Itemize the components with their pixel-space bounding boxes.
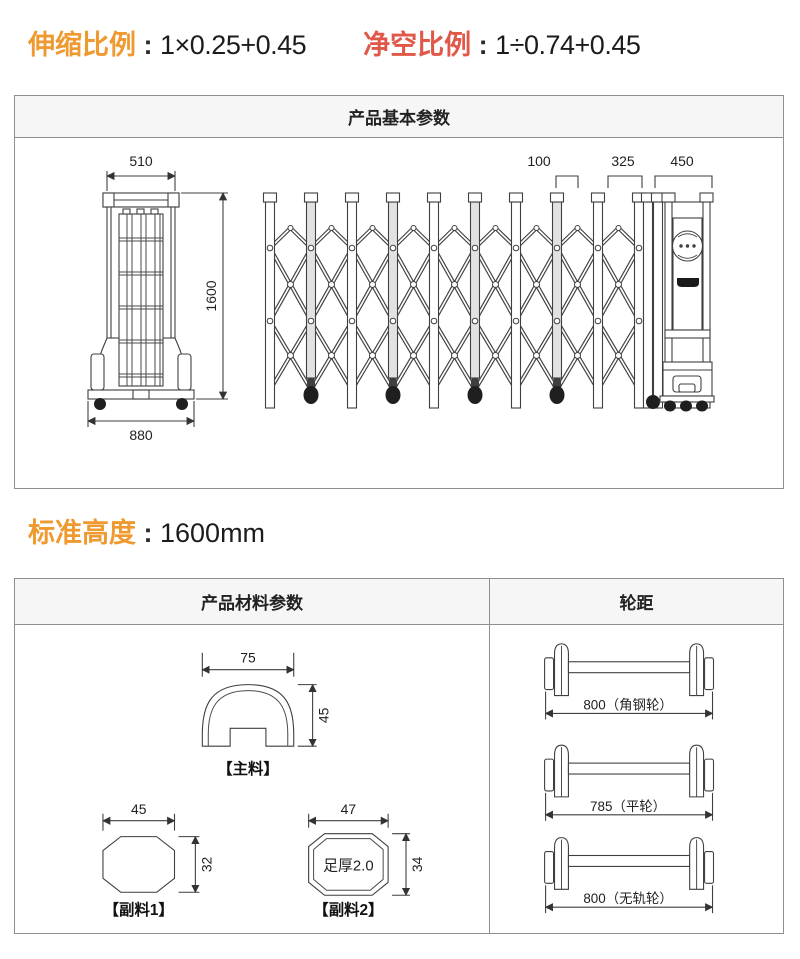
handle-slot [677, 278, 699, 287]
wheel-track-drawing: 800（角钢轮） 785（平轮） 800（无轨轮） [490, 625, 783, 933]
wheel-track-title: 轮距 [490, 579, 783, 625]
main-profile-caption: 【主料】 [217, 759, 279, 778]
sub-profile-1: 45 32 【副料1】 [103, 801, 214, 919]
folded-gate-view: 510 [88, 153, 228, 443]
sub-profile-2-width: 47 [341, 801, 357, 817]
basic-parameters-panel: 产品基本参数 [14, 95, 784, 489]
standard-height-label: 标准高度 [28, 511, 136, 550]
sub-profile-2-caption: 【副料2】 [313, 900, 383, 919]
main-profile-height: 45 [316, 707, 332, 723]
ratio-separator: : [471, 29, 495, 61]
sub-profile-1-height: 32 [198, 856, 214, 872]
sub-profile-2-wall-note: 足厚2.0 [323, 857, 373, 874]
dim-510-label: 510 [129, 153, 153, 169]
extension-ratio: 伸缩比例 : 1×0.25+0.45 [28, 29, 306, 61]
dim-510-lines [107, 171, 175, 191]
basic-parameters-title: 产品基本参数 [15, 96, 783, 138]
standard-height-value: 1600mm [160, 518, 265, 549]
main-profile-width: 75 [240, 650, 256, 666]
wheel-track-column: 轮距 [490, 579, 783, 933]
material-column: 产品材料参数 75 45 【主料】 [15, 579, 490, 933]
standard-height-row: 标准高度 : 1600mm [28, 511, 265, 550]
clearance-ratio-label: 净空比例 [363, 29, 471, 61]
wheel-track-flat: 785（平轮） [545, 745, 714, 821]
wheel-track-angle-steel-label: 800（角钢轮） [583, 697, 672, 712]
gate-technical-drawing: 510 [15, 138, 783, 489]
extension-ratio-label: 伸缩比例 [28, 29, 136, 61]
extension-ratio-value: 1×0.25+0.45 [160, 29, 306, 61]
wheel-track-trackless-label: 800（无轨轮） [583, 891, 672, 906]
gate-head-unit [642, 193, 715, 412]
sub-profile-1-width: 45 [131, 801, 147, 817]
dim-880-label: 880 [129, 427, 153, 443]
top-dimensions: 100 325 450 [527, 153, 712, 188]
clearance-ratio-value: 1÷0.74+0.45 [495, 29, 640, 61]
dim-1600-label: 1600 [203, 280, 219, 311]
expanded-gate-view [264, 193, 646, 408]
sub-profile-2-height: 34 [409, 856, 425, 872]
dim-325-label: 325 [611, 153, 635, 169]
wheel-track-angle-steel: 800（角钢轮） [545, 644, 714, 720]
wheel-track-flat-label: 785（平轮） [590, 799, 666, 814]
sub-profile-2: 47 足厚2.0 34 【副料2】 [309, 801, 425, 919]
spec-sheet-page: { "top_ratios": { "separator": " : ", "e… [0, 0, 800, 959]
ratio-row: 伸缩比例 : 1×0.25+0.45 净空比例 : 1÷0.74+0.45 [28, 29, 640, 61]
material-parameters-title: 产品材料参数 [15, 579, 489, 625]
ratio-separator: : [136, 29, 160, 61]
material-parameters-panel: 产品材料参数 75 45 【主料】 [14, 578, 784, 934]
standard-height-separator: : [136, 518, 160, 549]
main-profile: 75 45 【主料】 [202, 650, 331, 778]
dim-100-label: 100 [527, 153, 551, 169]
wheel-track-trackless: 800（无轨轮） [545, 838, 714, 914]
material-profiles-drawing: 75 45 【主料】 45 [15, 625, 489, 933]
clearance-ratio: 净空比例 : 1÷0.74+0.45 [363, 29, 640, 61]
sub-profile-1-caption: 【副料1】 [104, 900, 174, 919]
dim-450-label: 450 [670, 153, 694, 169]
